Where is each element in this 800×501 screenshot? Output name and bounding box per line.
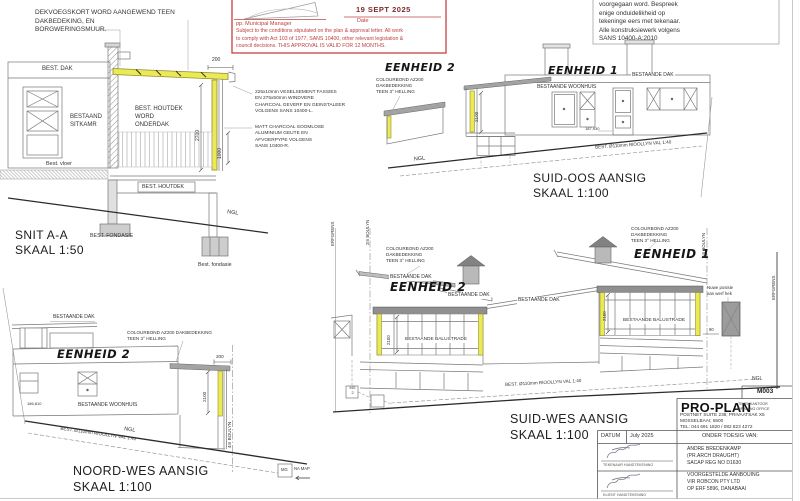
suid-wes-balustrade-links-label: BESTAANDE BALUSTRADE	[404, 337, 468, 343]
gutter-note: MATT CHARCOAL SOOMLOSE ALUMINIUM GEUTE E…	[255, 125, 324, 150]
suid-wes-scale: SKAAL 1:100	[510, 427, 589, 444]
snit-best-fondasie-label: BEST. FONDASIE	[90, 233, 133, 240]
snit-title: SNIT A-A	[15, 228, 68, 244]
suid-wes-eenheid1-label: EENHEID 1	[634, 247, 710, 263]
titleblock-brand-sub: TEKENKANTOOR DRAWING OFFICE	[738, 402, 769, 411]
snit-fondasie-klein-label: Best. fondasie	[198, 262, 232, 269]
suid-oos-dim-2100: 2100	[474, 112, 480, 122]
stamp-conditions: Subject to the conditions stipulated on …	[236, 28, 403, 51]
snit-best-houtdek-label: BEST. HOUTDEK	[142, 184, 184, 191]
noord-wes-title: NOORD-WES AANSIG	[73, 463, 209, 480]
suid-wes-balustrade-regs-label: BESTAANDE BALUSTRADE	[622, 318, 686, 324]
stamp-date-label: Date	[357, 18, 369, 25]
noord-wes-level: 186,810	[27, 401, 41, 406]
noord-wes-bestaande-dak-label: BESTAANDE DAK	[52, 314, 96, 321]
snit-scale: SKAAL 1:50	[15, 243, 84, 259]
noord-wes-dim-200: 200	[216, 354, 224, 360]
snit-dim-200: 200	[212, 57, 220, 64]
noord-wes-boulyn-label: 4m BOULYN	[227, 422, 233, 448]
snit-best-vloer-label: Best. vloer	[46, 161, 72, 168]
noord-wes-ngl-label: NGL	[124, 426, 136, 435]
noord-wes-na-map-label: NA MAP	[294, 466, 310, 472]
suid-wes-title: SUID-WES AANSIG	[510, 411, 629, 428]
titleblock-onder-toesig-label: ONDER TOESIG VAN:	[702, 433, 758, 440]
snit-houtdek-onderdak-label: BEST. HOUTDEK WORD ONDERDAK	[135, 106, 183, 130]
noord-wes-colourbond-note: COLOURBOND AZ200 DAKBEDEKKING TEEN 3° HE…	[127, 330, 212, 342]
suid-oos-ngl-label: NGL	[414, 155, 426, 163]
note-konstruksie: voorgegaan word. Bespreek enige onduidel…	[599, 1, 680, 44]
titleblock-datum-label: DATUM	[601, 433, 620, 440]
suid-wes-colourbond-note-2: COLOURBOND AZ200 DAKBEDEKKING TEEN 3° HE…	[386, 246, 433, 264]
drawing-sheet: DEKVOEGSKORT WORD AANGEWEND TEEN DAKBEDE…	[0, 0, 800, 501]
snit-aa-linework	[0, 20, 268, 256]
snit-ngl-label: NGL	[227, 209, 239, 218]
snit-dim-1000: 1000	[217, 148, 224, 159]
suid-oos-bestaande-dak-label: BESTAANDE DAK	[631, 72, 675, 79]
suid-wes-boulyn-4m-label: 4m BOULYN	[701, 233, 707, 258]
noord-wes-mg-label: MG	[281, 467, 288, 473]
titleblock-project: VOORGESTELDE AANBOUING VIR ROBCON PTY LT…	[687, 472, 760, 492]
suid-oos-colourbond-note: COLOURBOND AZ200 DAKBEDEKKING TEEN 3° HE…	[376, 77, 423, 95]
suid-wes-dim-2100-regs: 2100	[602, 311, 608, 321]
suid-wes-ngl-label: NGL	[752, 376, 762, 383]
suid-oos-eenheid1-label: EENHEID 1	[548, 64, 618, 79]
klient-signature	[607, 474, 640, 488]
suid-wes-erfgrens-regs-label: ERFGRENS	[771, 276, 777, 300]
suid-wes-hek-note: Nuwe posisie van werf hek	[707, 285, 733, 297]
suid-oos-eenheid2-label: EENHEID 2	[385, 61, 455, 76]
suid-wes-bestaande-dak-2-label: BESTAANDE DAK	[447, 292, 491, 299]
suid-oos-level: 187,930	[585, 126, 599, 131]
suid-wes-erfgrens-links-label: ERFGRENS	[330, 222, 336, 246]
noord-wes-woonhuis-label: BESTAANDE WOONHUIS	[78, 402, 137, 409]
noord-wes-eenheid2-label: EENHEID 2	[57, 347, 130, 362]
titleblock-datum-value: July 2025	[630, 433, 654, 440]
suid-oos-scale: SKAAL 1:100	[533, 186, 609, 202]
sheet-number: M003	[757, 388, 773, 397]
note-dekvoegskort: DEKVOEGSKORT WORD AANGEWEND TEEN DAKBEDE…	[35, 9, 195, 35]
tekenaar-signature	[607, 444, 640, 458]
suid-wes-boulyn-2m-label: 2m BOULYN	[365, 220, 371, 245]
suid-wes-dim-2100-links: 2100	[386, 335, 392, 345]
snit-best-dak-label: BEST. DAK	[42, 66, 73, 74]
titleblock-architect: ANDRE BREDENKAMP (PR.ARCH DRAUGHT) SACAP…	[687, 446, 741, 466]
fascia-note: 225x10mm VESELSEMENT FASSIES EN 275x50mm…	[255, 90, 345, 115]
noord-wes-scale: SKAAL 1:100	[73, 479, 152, 496]
suid-wes-dim-90: 90	[709, 327, 714, 333]
suid-wes-colourbond-note-1: COLOURBOND AZ200 DAKBEDEKKING TEEN 3° HE…	[631, 226, 678, 244]
noord-wes-linework	[3, 288, 310, 480]
snit-sitkamer-label: BESTAAND SITKAMR	[70, 114, 102, 130]
titleblock-tekenaar-sig-label: TEKENAAR HANDTEKENING	[603, 463, 653, 468]
stamp-date-value: 19 SEPT 2025	[356, 5, 411, 15]
suid-oos-title: SUID-OOS AANSIG	[533, 171, 646, 187]
suid-oos-woonhuis-label: BESTAANDE WOONHUIS	[537, 84, 596, 91]
snit-dim-2700: 2700	[195, 130, 202, 141]
noord-wes-dim-2100: 2100	[202, 392, 208, 402]
suid-wes-mg-2-label: MG 2	[347, 386, 358, 395]
titleblock-address: POSTNET SUITE 238; PRIVAATSAK X5 MOSSELB…	[680, 412, 765, 430]
titleblock-klient-sig-label: KLIENT HANDTEKENING	[603, 493, 646, 498]
suid-wes-bestaande-dak-3-label: BESTAANDE DAK	[517, 297, 561, 304]
